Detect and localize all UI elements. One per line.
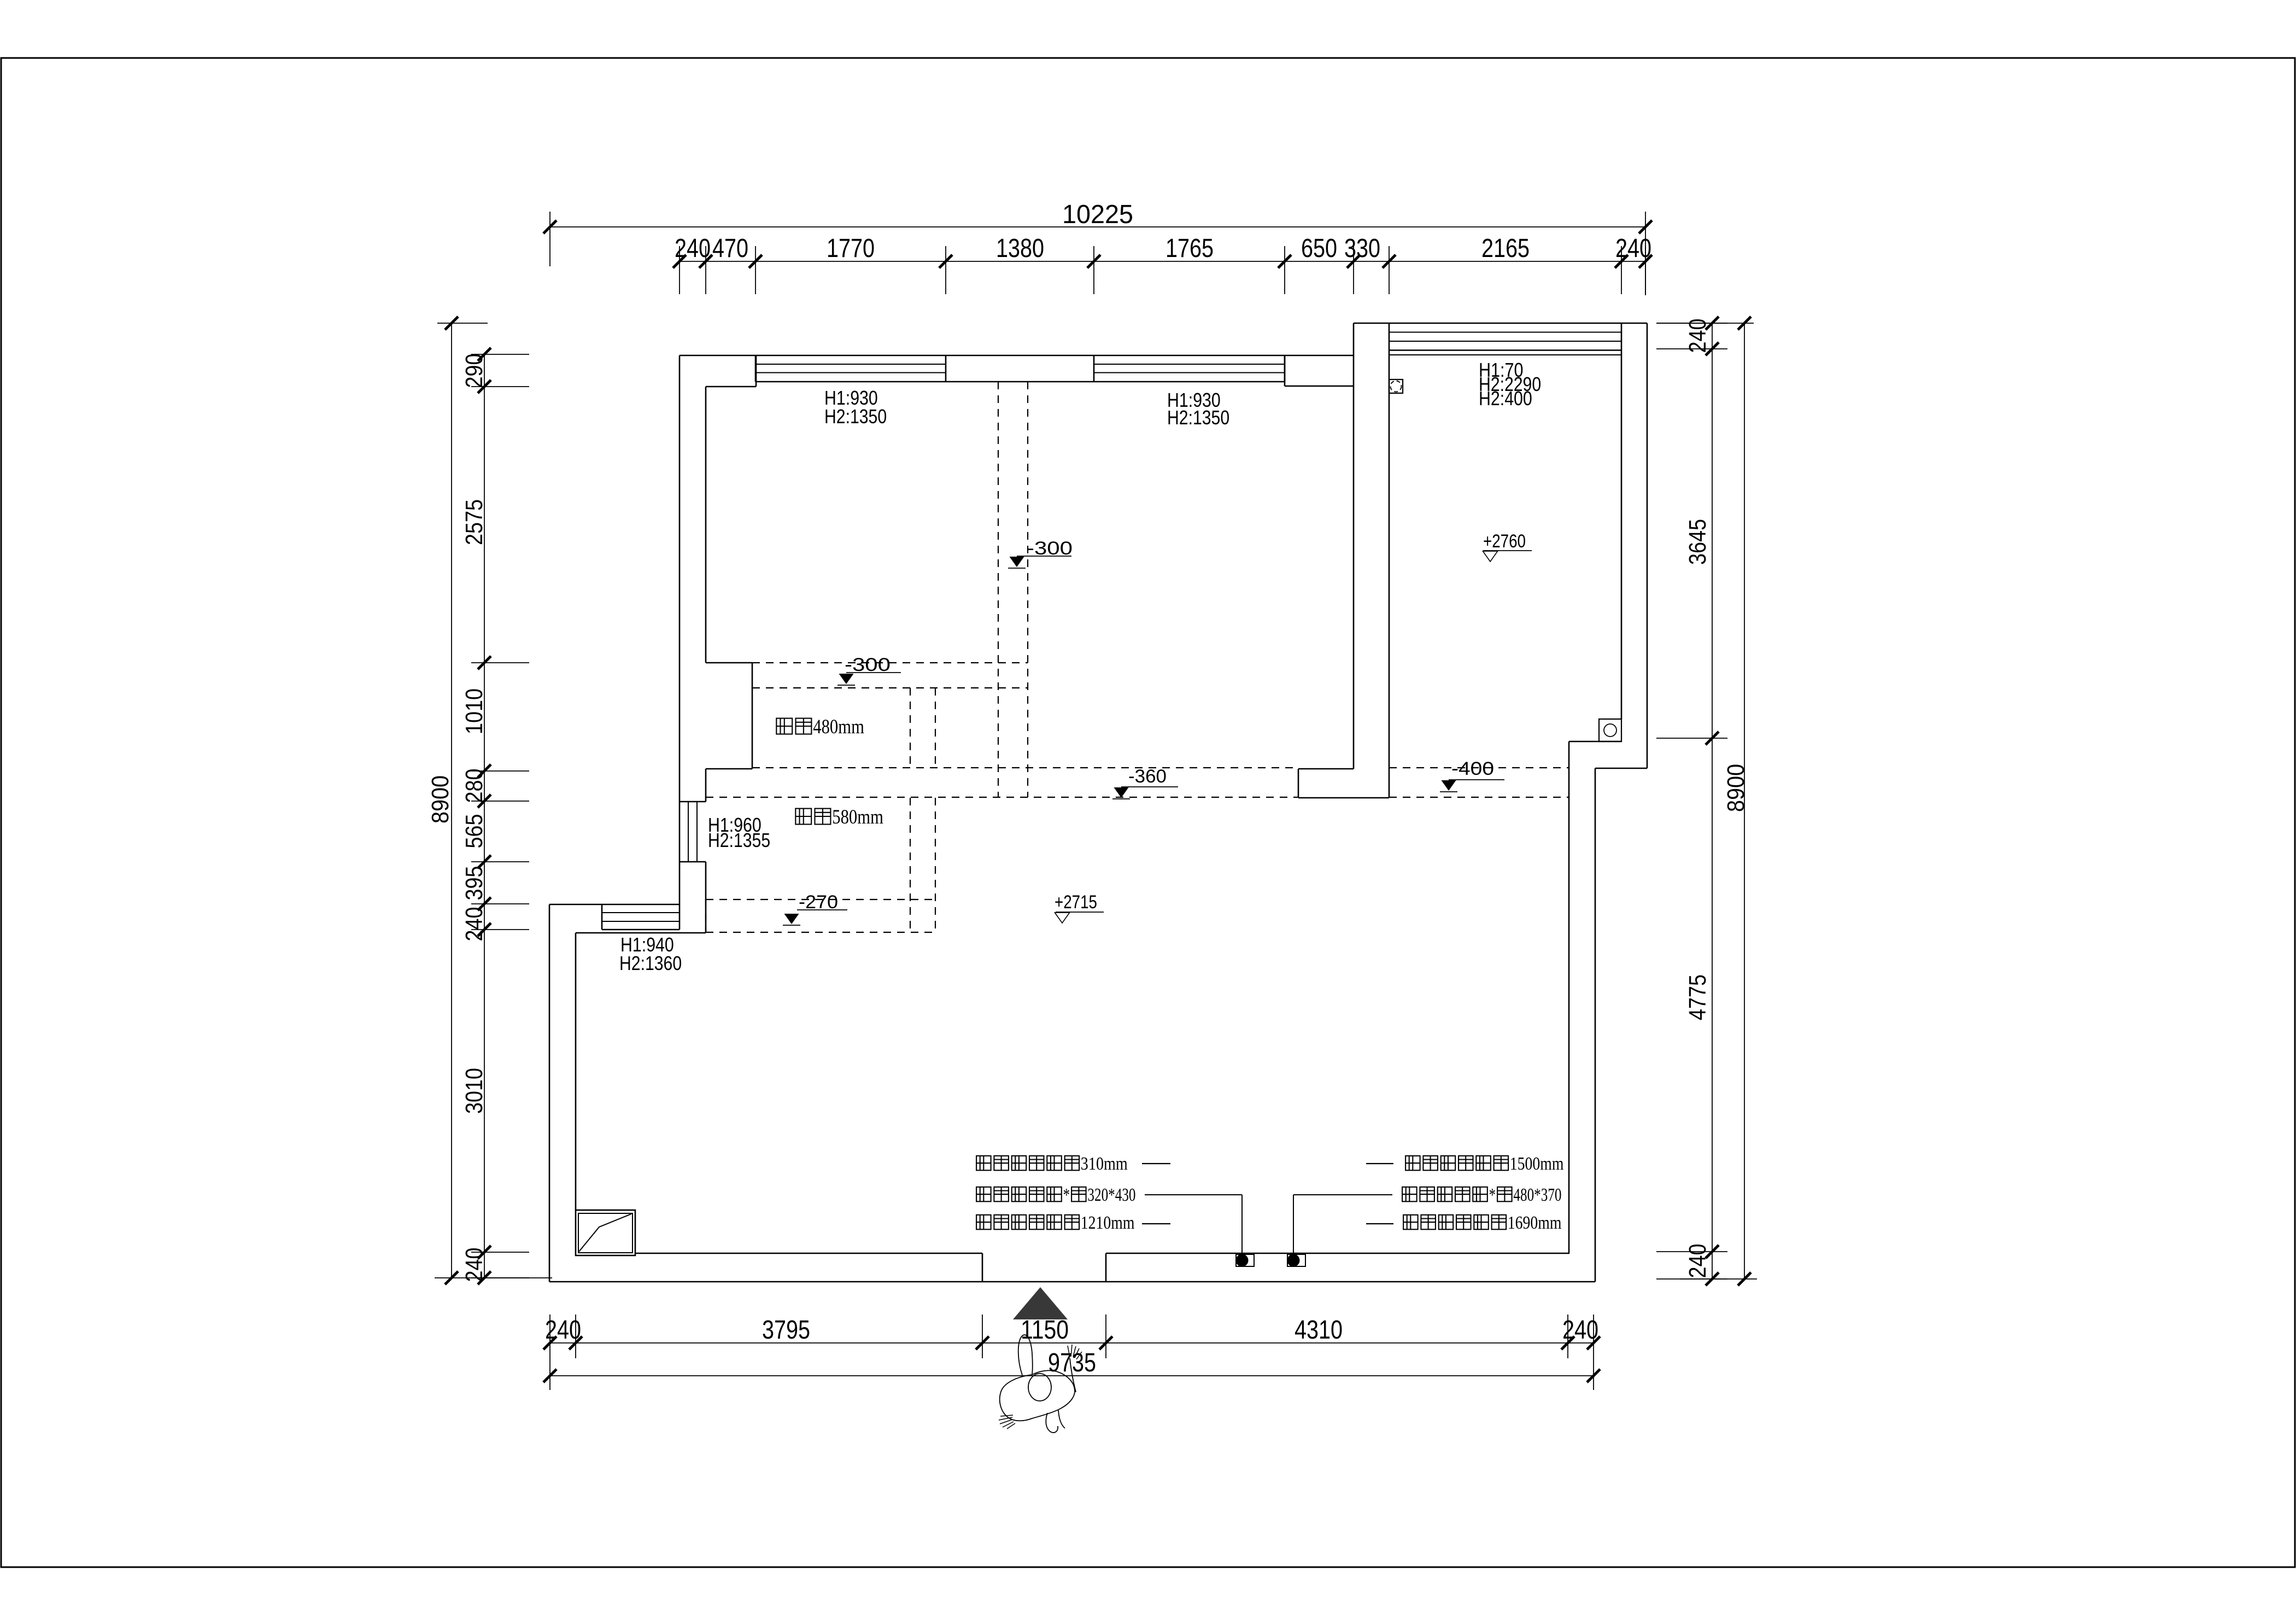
svg-text:240: 240 xyxy=(675,234,711,263)
svg-text:8900: 8900 xyxy=(427,775,454,823)
svg-text:1690mm: 1690mm xyxy=(1508,1213,1562,1233)
svg-text:+2715: +2715 xyxy=(1055,892,1097,913)
svg-text:H2:1350: H2:1350 xyxy=(1167,406,1229,429)
svg-text:330: 330 xyxy=(1344,234,1380,263)
svg-text:-360: -360 xyxy=(1128,766,1167,787)
svg-text:3795: 3795 xyxy=(762,1316,810,1345)
svg-text:3010: 3010 xyxy=(461,1068,488,1114)
svg-text:240: 240 xyxy=(461,907,488,942)
svg-text:2575: 2575 xyxy=(461,499,488,545)
svg-text:1765: 1765 xyxy=(1165,234,1214,263)
svg-text:1150: 1150 xyxy=(1021,1316,1069,1345)
svg-text:320*430: 320*430 xyxy=(1087,1185,1135,1205)
svg-text:240: 240 xyxy=(545,1316,581,1345)
svg-text:240: 240 xyxy=(461,1248,488,1282)
svg-text:1010: 1010 xyxy=(461,688,488,734)
svg-text:280: 280 xyxy=(461,769,488,803)
svg-text:H2:400: H2:400 xyxy=(1479,387,1532,410)
svg-text:10225: 10225 xyxy=(1062,200,1133,229)
svg-text:8900: 8900 xyxy=(1723,764,1749,812)
svg-text:1380: 1380 xyxy=(996,234,1044,263)
svg-text:240: 240 xyxy=(1615,234,1651,263)
svg-text:310mm: 310mm xyxy=(1081,1154,1128,1174)
svg-text:240: 240 xyxy=(1684,319,1711,353)
svg-text:*: * xyxy=(1063,1185,1070,1205)
svg-text:565: 565 xyxy=(461,814,488,849)
svg-text:1210mm: 1210mm xyxy=(1081,1213,1135,1233)
svg-text:+2760: +2760 xyxy=(1483,531,1526,552)
svg-text:3645: 3645 xyxy=(1684,519,1711,565)
svg-text:240: 240 xyxy=(1562,1316,1598,1345)
svg-text:395: 395 xyxy=(461,866,488,901)
svg-text:480*370: 480*370 xyxy=(1513,1185,1561,1205)
svg-text:290: 290 xyxy=(461,354,488,388)
svg-text:470: 470 xyxy=(712,234,748,263)
svg-text:480mm: 480mm xyxy=(813,716,864,738)
svg-text:-400: -400 xyxy=(1451,758,1494,779)
svg-text:*: * xyxy=(1489,1185,1496,1205)
svg-text:580mm: 580mm xyxy=(832,806,883,828)
svg-text:2165: 2165 xyxy=(1481,234,1530,263)
svg-text:240: 240 xyxy=(1684,1244,1711,1278)
svg-text:4310: 4310 xyxy=(1295,1316,1343,1345)
svg-text:1770: 1770 xyxy=(827,234,875,263)
svg-text:1500mm: 1500mm xyxy=(1510,1154,1564,1174)
svg-text:650: 650 xyxy=(1301,234,1337,263)
svg-text:4775: 4775 xyxy=(1684,974,1711,1020)
svg-text:H2:1350: H2:1350 xyxy=(824,405,887,428)
svg-text:H2:1360: H2:1360 xyxy=(619,952,682,974)
svg-text:H2:1355: H2:1355 xyxy=(708,829,770,851)
